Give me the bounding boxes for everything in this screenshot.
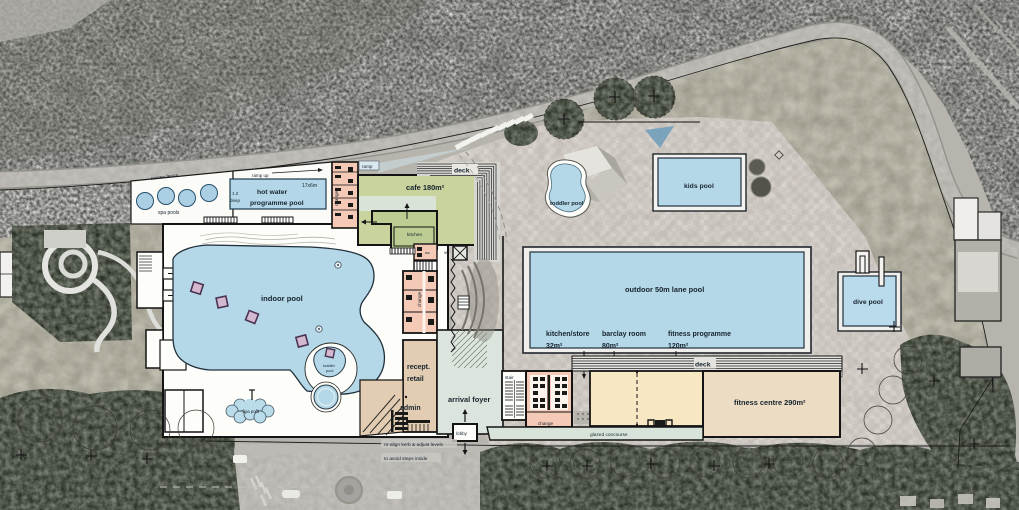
svg-text:recept.: recept. [407, 364, 430, 371]
svg-text:change: change [334, 190, 339, 206]
svg-text:kitchen: kitchen [407, 232, 423, 238]
svg-text:fitness centre 290m²: fitness centre 290m² [734, 398, 806, 407]
svg-text:outdoor 50m lane pool: outdoor 50m lane pool [625, 285, 704, 294]
svg-text:hot water: hot water [257, 189, 288, 196]
svg-text:120m²: 120m² [668, 343, 689, 350]
svg-text:arrival foyer: arrival foyer [448, 395, 490, 404]
svg-text:re-align kerb & adjust levels: re-align kerb & adjust levels [384, 442, 444, 448]
svg-text:dive pool: dive pool [853, 299, 883, 306]
svg-text:spa pool: spa pool [243, 409, 259, 414]
svg-text:spa pools: spa pools [158, 210, 180, 216]
svg-text:1.2: 1.2 [232, 191, 239, 196]
svg-text:wc: wc [425, 250, 430, 255]
svg-text:kids pool: kids pool [684, 183, 714, 190]
svg-text:fitness programme: fitness programme [668, 331, 731, 338]
svg-text:deck: deck [695, 362, 711, 369]
svg-text:to avoid steps inside: to avoid steps inside [384, 456, 428, 462]
svg-text:stair: stair [505, 375, 514, 380]
svg-text:17x6m: 17x6m [302, 183, 317, 189]
svg-text:retail: retail [407, 376, 424, 383]
svg-text:change: change [538, 421, 554, 426]
svg-text:pool: pool [326, 368, 333, 373]
svg-text:kitchen/store: kitchen/store [546, 331, 590, 338]
svg-text:lobby: lobby [456, 431, 468, 436]
svg-text:barclay room: barclay room [602, 331, 646, 338]
svg-text:deck: deck [454, 168, 470, 175]
svg-text:ramp up: ramp up [252, 173, 269, 178]
svg-text:32m²: 32m² [546, 343, 563, 350]
svg-text:deep: deep [230, 198, 241, 203]
svg-text:programme pool: programme pool [250, 200, 304, 207]
svg-text:change: change [417, 291, 422, 307]
svg-text:toddler pool: toddler pool [550, 201, 584, 207]
svg-text:indoor pool: indoor pool [261, 294, 303, 303]
svg-text:80m²: 80m² [602, 343, 619, 350]
svg-text:ramp: ramp [362, 164, 373, 169]
svg-text:glazed concourse: glazed concourse [590, 432, 628, 438]
svg-text:admin: admin [400, 405, 421, 412]
svg-text:cafe 180m²: cafe 180m² [406, 183, 445, 192]
